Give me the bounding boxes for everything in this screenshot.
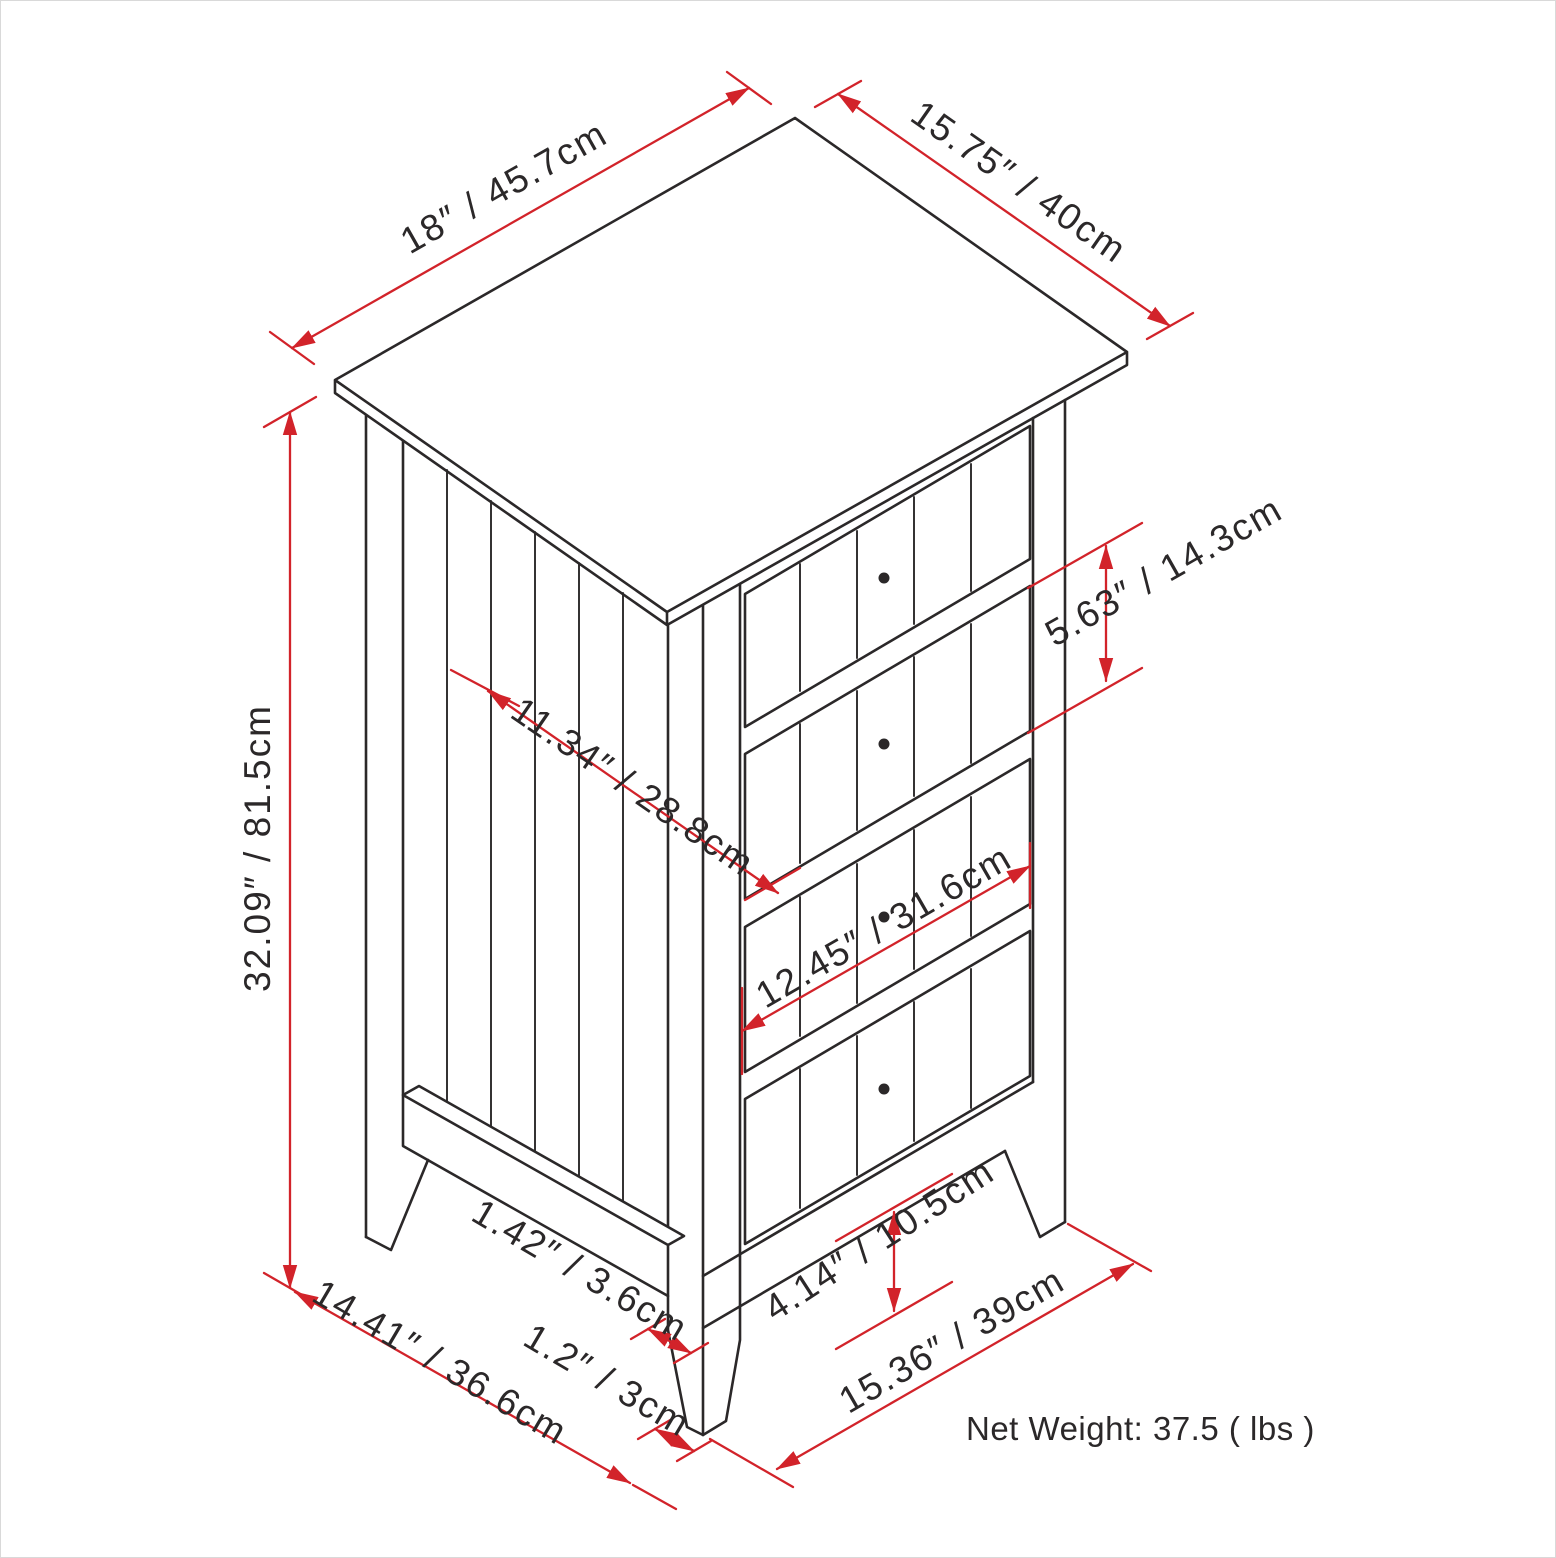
dim-floor-width: 15.36″ / 39cm — [710, 1224, 1151, 1487]
dim-drawer-height-label: 5.63″ / 14.3cm — [1038, 488, 1289, 654]
dim-side-panel-label: 11.34″ / 28.8cm — [504, 689, 762, 884]
cabinet-dimension-diagram: 18″ / 45.7cm 15.75″ / 40cm 32.09″ / 81.5… — [0, 0, 1556, 1558]
dim-floor-depth-extension — [633, 1485, 676, 1509]
dim-floor-depth-label: 14.41″ / 36.6cm — [306, 1272, 575, 1453]
diagram-canvas: 18″ / 45.7cm 15.75″ / 40cm 32.09″ / 81.5… — [0, 0, 1556, 1558]
drawer-2-knob — [879, 739, 890, 750]
drawer-1-knob — [879, 573, 890, 584]
cabinet-line-art — [335, 118, 1127, 1435]
dim-height: 32.09″ / 81.5cm — [237, 397, 316, 1303]
side-panel-bead-lines — [447, 470, 623, 1220]
dim-drawer-height: 5.63″ / 14.3cm — [1028, 488, 1289, 733]
net-weight-text: Net Weight: 37.5 ( lbs ) — [966, 1410, 1315, 1447]
rear-left-leg — [366, 1160, 428, 1250]
right-leg — [1005, 1151, 1065, 1237]
dim-height-label: 32.09″ / 81.5cm — [237, 704, 278, 992]
drawer-4-knob — [879, 1084, 890, 1095]
